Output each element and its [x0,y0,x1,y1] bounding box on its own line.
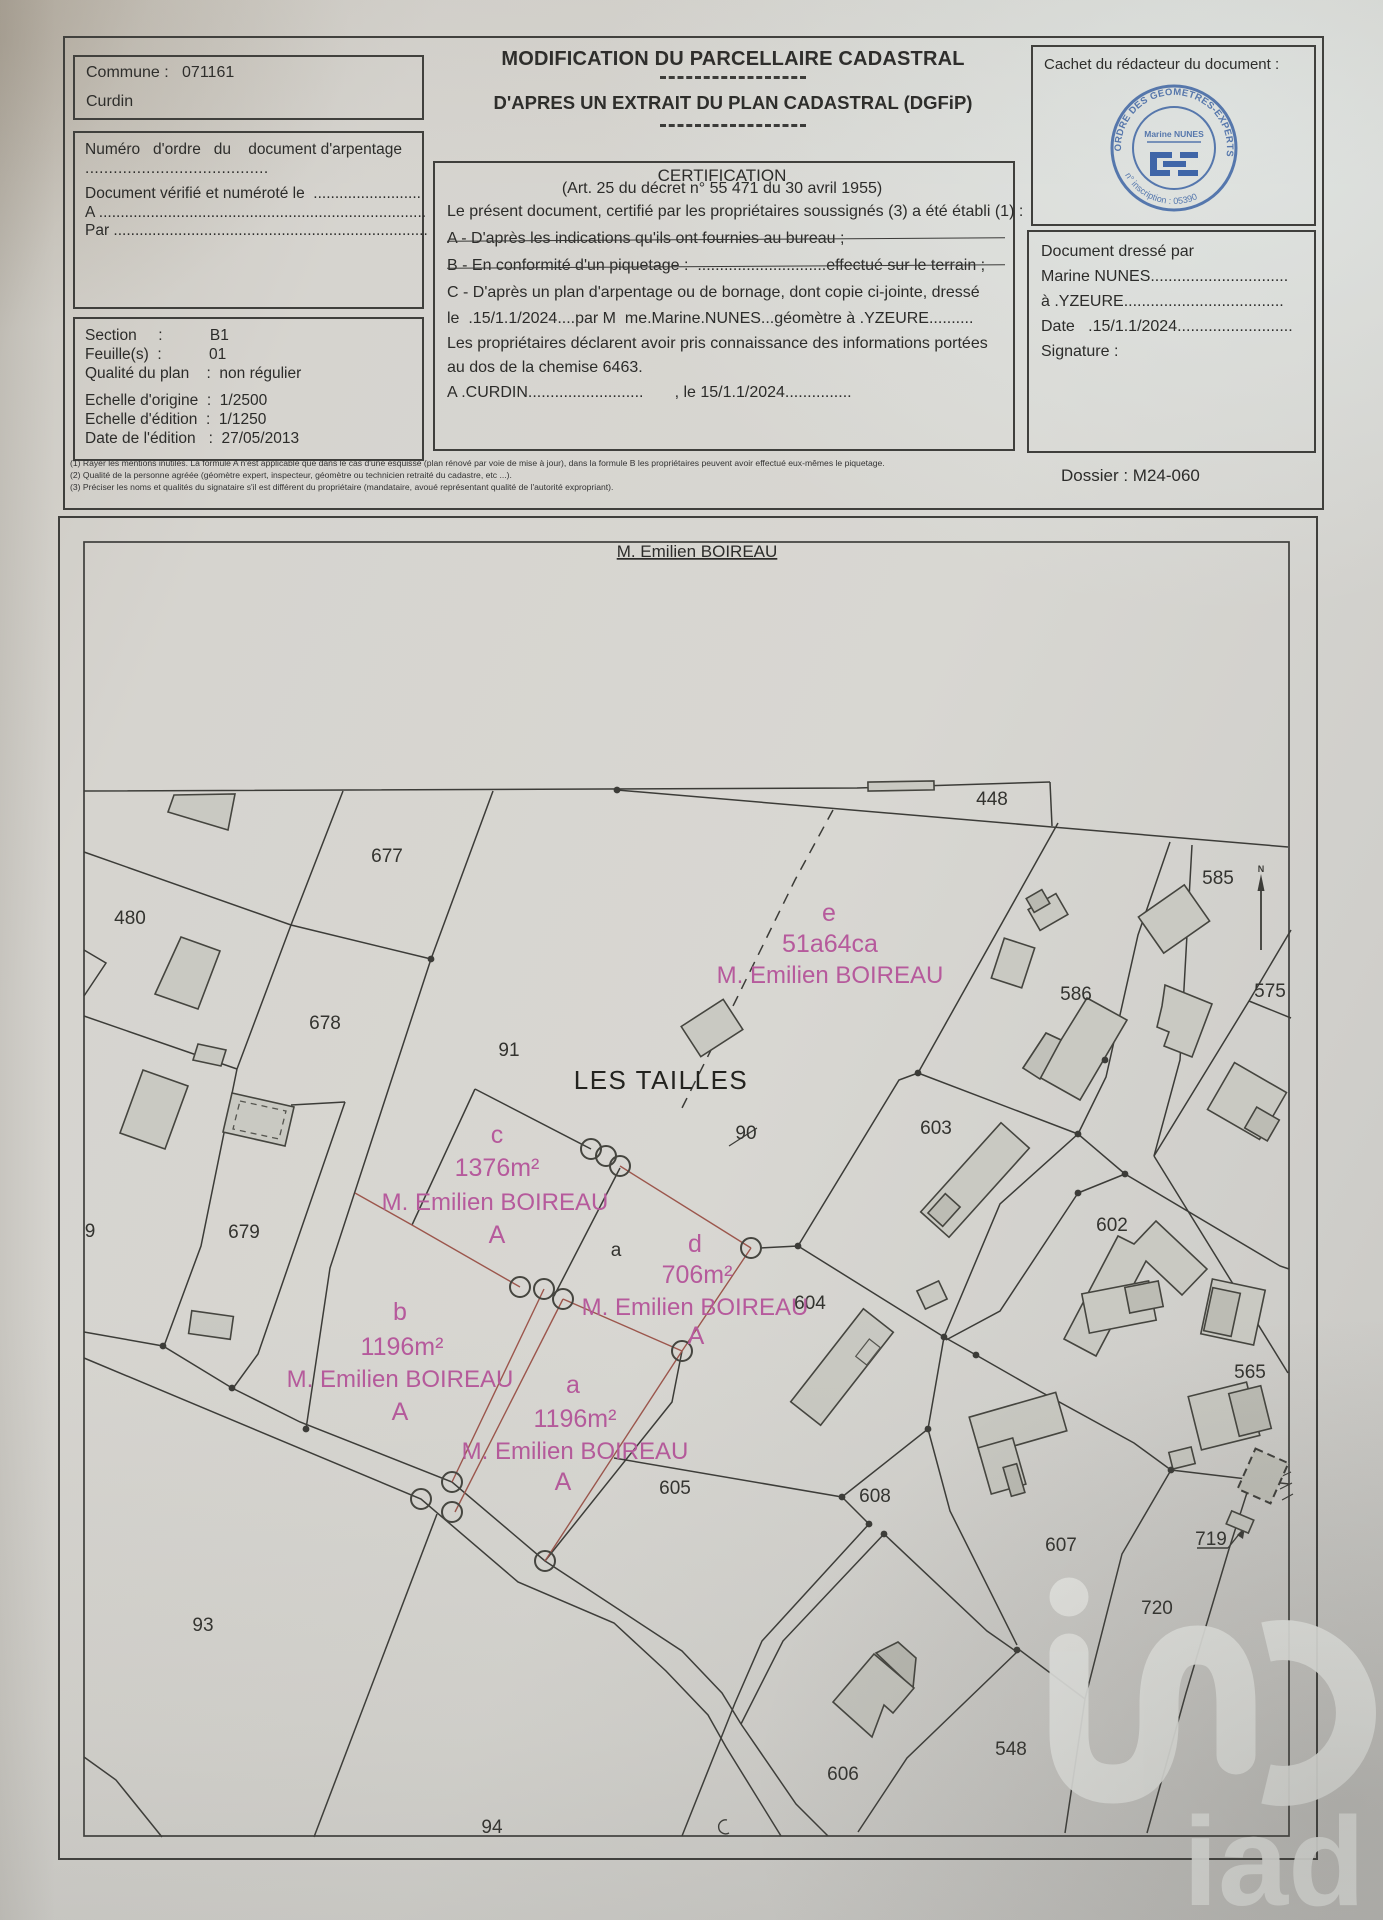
svg-text:678: 678 [309,1013,341,1034]
svg-text:M. Emilien BOIREAU: M. Emilien BOIREAU [462,1438,689,1465]
svg-text:1196m²: 1196m² [361,1333,444,1361]
svg-text:719: 719 [1195,1529,1227,1550]
svg-text:LES TAILLES: LES TAILLES [574,1065,749,1095]
svg-text:602: 602 [1096,1215,1128,1236]
svg-text:608: 608 [859,1486,891,1507]
svg-text:M. Emilien BOIREAU: M. Emilien BOIREAU [382,1189,609,1216]
svg-text:ORDRE DES GEOMETRES-EXPERTS: ORDRE DES GEOMETRES-EXPERTS [1113,87,1235,158]
svg-text:679: 679 [228,1222,260,1243]
svg-text:603: 603 [920,1118,952,1139]
svg-text:575: 575 [1254,981,1286,1002]
svg-text:9: 9 [85,1221,96,1242]
svg-text:a: a [566,1371,580,1399]
svg-text:A: A [555,1468,572,1496]
svg-text:d: d [688,1230,702,1258]
svg-text:iad: iad [1183,1791,1365,1920]
svg-text:b: b [393,1298,407,1326]
svg-text:c: c [491,1121,504,1149]
svg-text:1376m²: 1376m² [455,1154,540,1182]
svg-text:M. Emilien BOIREAU: M. Emilien BOIREAU [717,962,944,989]
svg-text:M. Emilien BOIREAU: M. Emilien BOIREAU [582,1294,809,1321]
svg-text:606: 606 [827,1764,859,1785]
svg-text:51a64ca: 51a64ca [782,930,878,958]
svg-text:586: 586 [1060,984,1092,1005]
svg-text:e: e [822,899,836,927]
svg-text:A: A [392,1398,409,1426]
svg-text:N: N [1258,864,1265,874]
svg-text:677: 677 [371,846,403,867]
svg-text:605: 605 [659,1478,691,1499]
svg-text:M. Emilien BOIREAU: M. Emilien BOIREAU [617,542,778,561]
svg-text:M. Emilien BOIREAU: M. Emilien BOIREAU [287,1366,514,1393]
svg-text:585: 585 [1202,868,1234,889]
svg-text:565: 565 [1234,1362,1266,1383]
svg-text:A: A [688,1322,705,1350]
svg-text:A: A [489,1221,506,1249]
svg-text:Marine NUNES: Marine NUNES [1144,129,1204,139]
svg-text:548: 548 [995,1739,1027,1760]
svg-text:720: 720 [1141,1598,1173,1619]
svg-text:448: 448 [976,789,1008,810]
svg-text:706m²: 706m² [662,1261,733,1289]
svg-text:91: 91 [498,1040,519,1061]
svg-text:93: 93 [192,1615,213,1636]
svg-text:607: 607 [1045,1535,1077,1556]
svg-text:94: 94 [481,1817,503,1838]
svg-text:1196m²: 1196m² [534,1405,617,1433]
svg-text:a: a [611,1240,622,1261]
svg-text:90: 90 [735,1123,756,1144]
svg-text:n° inscription : 05390: n° inscription : 05390 [1123,171,1198,206]
svg-text:480: 480 [114,908,146,929]
